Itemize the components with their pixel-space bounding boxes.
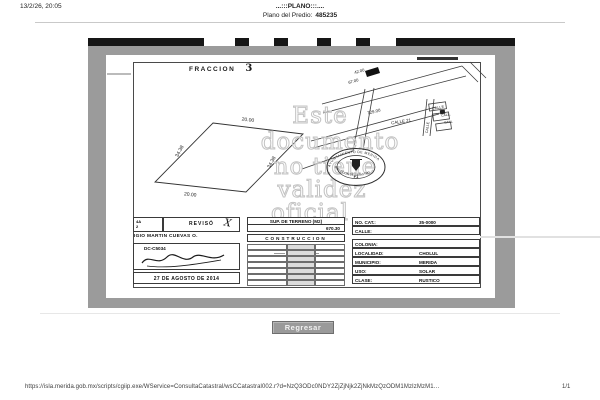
construction-cell <box>247 280 287 286</box>
attr-label: NO. CAT.: <box>355 220 376 225</box>
table-cell-misc: 4A 2 <box>133 217 163 232</box>
construction-cell <box>315 280 345 286</box>
predio-number: 485235 <box>315 12 337 19</box>
attr-label: LOCALIDAD: <box>355 251 384 256</box>
attr-value: SOLAR <box>419 269 435 274</box>
terreno-header: SUP. DE TERRENO (M2) <box>248 218 344 225</box>
handwritten-check: X <box>223 217 232 229</box>
svg-text:DIRECCION DE CATASTRO: DIRECCION DE CATASTRO <box>334 165 372 177</box>
predio-subtitle: Plano del Predio:485235 <box>0 12 600 19</box>
attr-label: CALLE: <box>355 229 372 234</box>
scan-mark <box>274 38 288 46</box>
print-footer-url: https://isla.merida.gob.mx/scripts/cgiip… <box>25 384 440 390</box>
construction-cell <box>287 280 315 286</box>
attr-row-municipio: MUNICIPIO: MERIDA <box>352 257 480 266</box>
scan-mark <box>317 38 331 46</box>
road-line <box>462 66 478 82</box>
predio-attributes: NO. CAT.: 35-0000 CALLE: COLONIA: LOCALI… <box>352 217 480 284</box>
attr-row-localidad: LOCALIDAD: CHOLUL <box>352 248 480 257</box>
plan-date: 27 DE AGOSTO DE 2014 <box>134 273 239 282</box>
stray-divider <box>480 236 600 238</box>
attr-value: 35-0000 <box>419 220 436 225</box>
seal-bottom-text: DIRECCION DE CATASTRO <box>334 165 372 177</box>
content-divider <box>40 313 560 314</box>
predio-marker <box>365 67 380 77</box>
attr-value: RUSTICO <box>419 278 440 283</box>
street-dim-729: 729.00 <box>367 107 382 115</box>
seal-ornament <box>350 159 362 160</box>
construccion-label: CONSTRUCCION <box>248 235 344 241</box>
plan-document: FRACCION3 20.00 20.00 34.38 34.38 42.00 … <box>106 55 495 298</box>
surveyor-name: IGIO MARTIN CUEVAS O. <box>134 234 198 239</box>
seal-code: F1 <box>354 174 359 179</box>
official-seal: AYUNTAMIENTO DE MERIDA DIRECCION DE CATA… <box>321 145 391 189</box>
attr-row-colonia: COLONIA: <box>352 239 480 248</box>
attr-row-uso: USO: SOLAR <box>352 266 480 275</box>
scan-bar <box>396 38 515 46</box>
road-line <box>322 66 462 104</box>
signature-cell: DC-C5034 <box>133 243 240 270</box>
seal-coat-of-arms <box>352 160 360 171</box>
attr-row-clase: CLASE: RUSTICO <box>352 275 480 284</box>
lot-dim-left: 34.38 <box>174 144 185 158</box>
street-label-calle-vertical: CALLE <box>425 121 431 133</box>
attr-value: CHOLUL <box>419 251 438 256</box>
regresar-button[interactable]: Regresar <box>272 321 334 334</box>
attr-row-nocat: NO. CAT.: 35-0000 <box>352 217 480 226</box>
page-title: ...:::PLANO:::.... <box>0 3 600 10</box>
scan-bar <box>88 38 204 46</box>
lot-dim-bottom: 20.00 <box>184 191 197 198</box>
scan-mark <box>356 38 370 46</box>
misc-line2: 2 <box>134 224 162 229</box>
construccion-grid <box>247 244 345 286</box>
scan-mark <box>235 38 249 46</box>
signature <box>139 251 234 269</box>
surveyor-code: DC-C5034 <box>134 244 239 251</box>
attr-value: MERIDA <box>419 260 437 265</box>
header-divider <box>35 22 565 23</box>
street-dim-67: 67.00 <box>348 77 360 85</box>
attr-label: MUNICIPIO: <box>355 260 381 265</box>
road-line <box>470 62 486 78</box>
terreno-value: 670.30 <box>248 225 344 231</box>
attr-label: COLONIA: <box>355 242 378 247</box>
watermark-line: Este <box>292 103 347 129</box>
attr-row-calle: CALLE: <box>352 226 480 235</box>
terreno-cell: SUP. DE TERRENO (M2) 670.30 <box>247 217 345 232</box>
print-page-number: 1/1 <box>562 384 570 390</box>
attr-label: USO: <box>355 269 366 274</box>
reviso-cell: REVISÓ X <box>163 217 240 232</box>
date-cell: 27 DE AGOSTO DE 2014 <box>133 272 240 284</box>
street-dim-42: 42.00 <box>354 67 366 75</box>
attr-label: CLASE: <box>355 278 372 283</box>
street-label-calle: CALL <box>444 119 453 124</box>
lot-dim-top: 20.00 <box>241 117 254 125</box>
predio-label: Plano del Predio: <box>263 12 313 19</box>
